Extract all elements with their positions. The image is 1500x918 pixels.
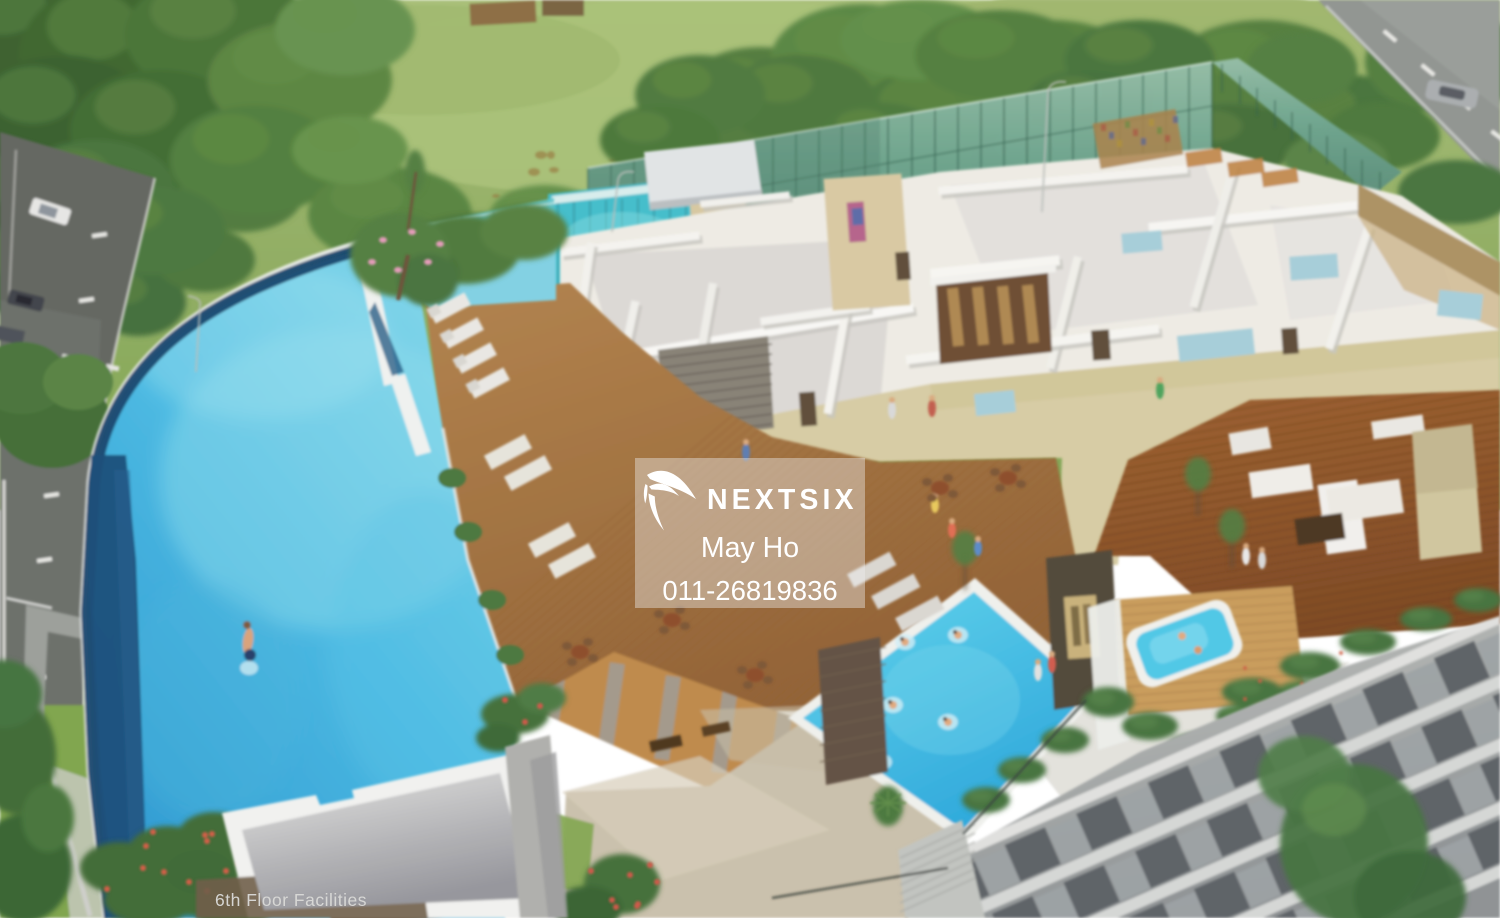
svg-text:NEXTSIX: NEXTSIX <box>707 484 858 516</box>
svg-text:May Ho: May Ho <box>701 532 799 564</box>
svg-text:011-26819836: 011-26819836 <box>662 575 837 606</box>
